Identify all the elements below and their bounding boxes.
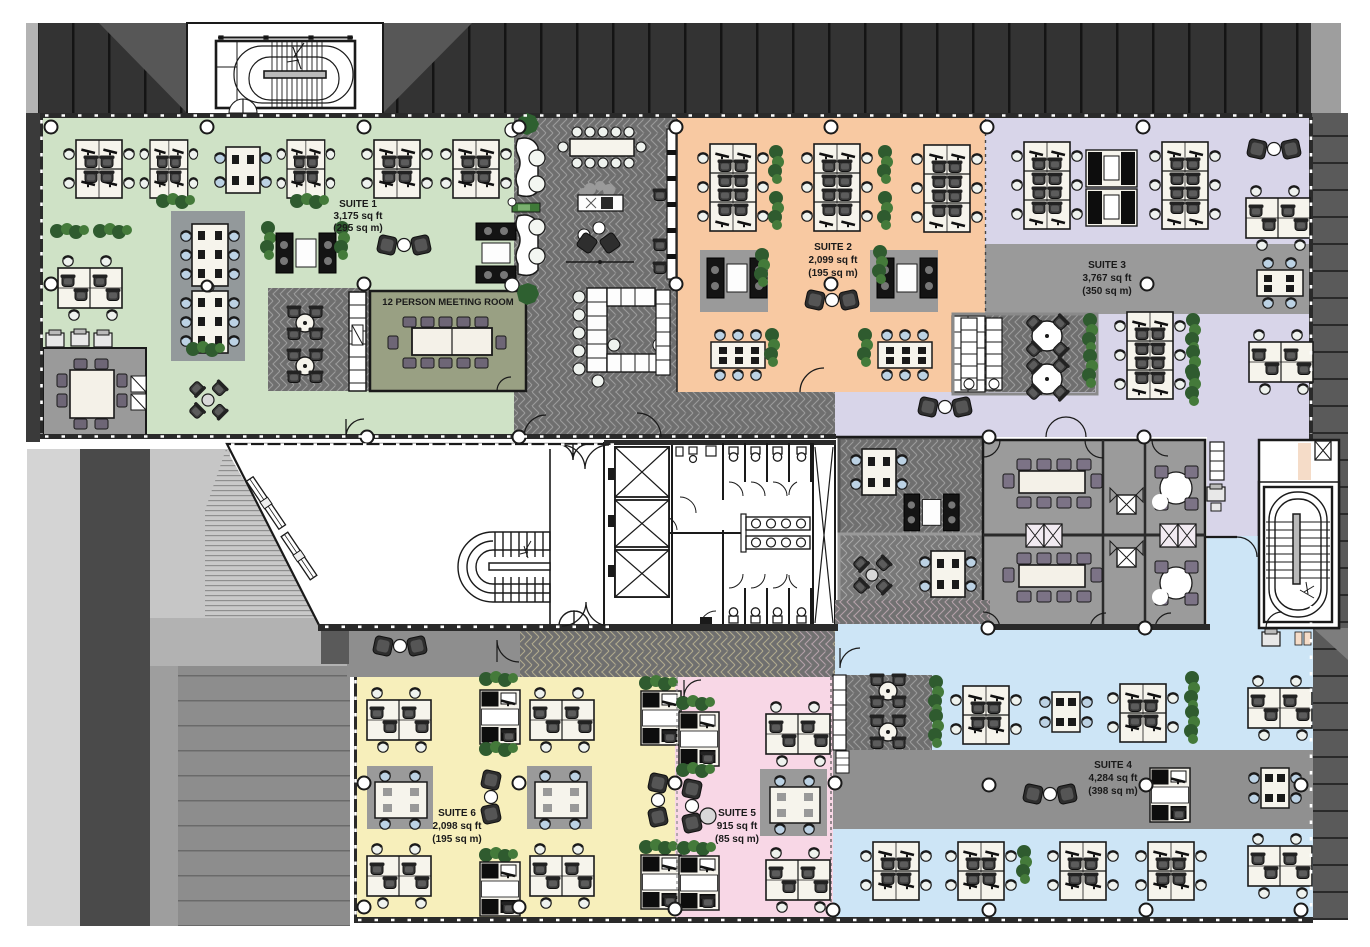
svg-text:3,175 sq ft: 3,175 sq ft [334,211,384,222]
svg-text:2,098 sq ft: 2,098 sq ft [433,821,483,832]
svg-text:SUITE 5: SUITE 5 [718,808,756,819]
svg-text:915 sq ft: 915 sq ft [717,821,758,832]
svg-text:(398 sq m): (398 sq m) [1088,786,1137,797]
svg-text:SUITE 1: SUITE 1 [339,199,377,210]
svg-text:(195 sq m): (195 sq m) [808,268,857,279]
svg-text:4,284 sq ft: 4,284 sq ft [1089,773,1139,784]
svg-text:(295 sq m): (295 sq m) [333,223,382,234]
svg-text:(350 sq m): (350 sq m) [1082,286,1131,297]
svg-text:SUITE 4: SUITE 4 [1094,760,1132,771]
svg-text:SUITE 2: SUITE 2 [814,242,852,253]
svg-text:3,767 sq ft: 3,767 sq ft [1083,273,1133,284]
svg-text:SUITE 6: SUITE 6 [438,808,476,819]
svg-text:SUITE 3: SUITE 3 [1088,260,1126,271]
svg-text:(85 sq m): (85 sq m) [715,834,759,845]
svg-text:12 PERSON MEETING ROOM: 12 PERSON MEETING ROOM [382,297,514,308]
svg-text:2,099 sq ft: 2,099 sq ft [809,255,859,266]
svg-text:(195 sq m): (195 sq m) [432,834,481,845]
